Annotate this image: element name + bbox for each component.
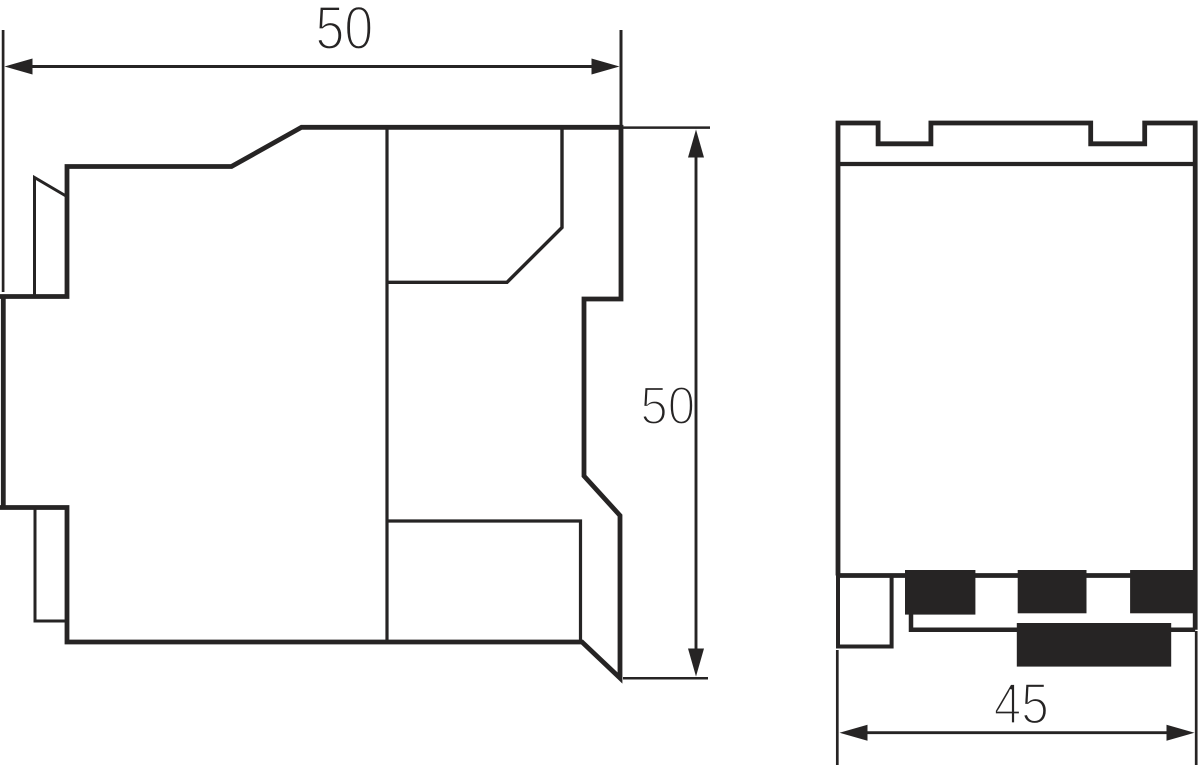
svg-text:50: 50 xyxy=(315,0,373,63)
svg-text:50: 50 xyxy=(640,375,695,435)
svg-text:45: 45 xyxy=(994,672,1049,736)
